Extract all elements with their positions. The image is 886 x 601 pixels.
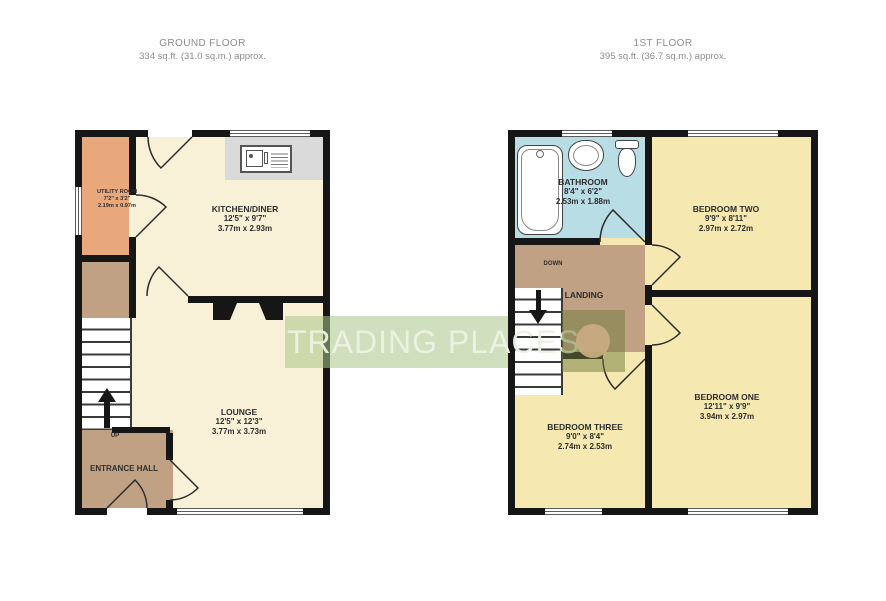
door-opening — [107, 508, 147, 515]
down-label: DOWN — [536, 261, 570, 268]
wall — [645, 345, 652, 508]
entrance-hall-label: ENTRANCE HALL — [84, 464, 164, 474]
room-name: KITCHEN/DINER — [185, 204, 305, 214]
watermark-logo — [562, 310, 625, 372]
room-size-imperial: 12'5" x 12'3" — [179, 417, 299, 427]
window — [177, 508, 303, 515]
utility-room-label: UTILITY ROOM 7'2" x 3'2" 2.19m x 0.97m — [87, 189, 147, 209]
bedroom-two-label: BEDROOM TWO 9'9" x 8'11" 2.97m x 2.72m — [666, 204, 786, 234]
sink-icon — [240, 145, 292, 173]
room-name: BEDROOM ONE — [667, 392, 787, 402]
room-size-metric: 2.97m x 2.72m — [666, 224, 786, 234]
room-size-imperial: 12'5" x 9'7" — [185, 214, 305, 224]
room-size-metric: 2.74m x 2.53m — [525, 442, 645, 452]
bath-tap-icon — [536, 150, 544, 158]
room-size-imperial: 9'9" x 8'11" — [666, 214, 786, 224]
sink-basin-icon — [246, 150, 263, 167]
basin-inner — [573, 145, 599, 166]
bathroom-label: BATHROOM 8'4" x 6'2" 2.53m x 1.88m — [531, 177, 635, 207]
floor-area: 334 sq.ft. (31.0 sq.m.) approx. — [75, 51, 330, 62]
wall — [82, 255, 136, 262]
floor-area: 395 sq.ft. (36.7 sq.m.) approx. — [508, 51, 818, 62]
room-size-metric: 3.94m x 2.97m — [667, 412, 787, 422]
sink-tap-icon — [249, 154, 253, 158]
ground-floor-header: GROUND FLOOR 334 sq.ft. (31.0 sq.m.) app… — [75, 38, 330, 62]
room-size-imperial: 8'4" x 6'2" — [531, 187, 635, 197]
room-size-metric: 2.19m x 0.97m — [87, 203, 147, 210]
door-opening — [148, 130, 192, 137]
watermark-text: TRADING PLACES — [287, 316, 567, 368]
wall — [645, 137, 652, 245]
window — [230, 130, 310, 137]
toilet-icon — [618, 148, 636, 177]
landing-label: LANDING — [556, 290, 612, 300]
room-name: BATHROOM — [531, 177, 635, 187]
sink-tap-icon — [264, 152, 268, 164]
wall — [515, 238, 600, 245]
up-label: UP — [103, 433, 127, 440]
floorplan-page: GROUND FLOOR 334 sq.ft. (31.0 sq.m.) app… — [0, 0, 886, 601]
watermark-logo-circle — [576, 324, 610, 358]
floor-title: GROUND FLOOR — [75, 38, 330, 49]
window — [545, 508, 602, 515]
wall — [166, 500, 173, 508]
floor-title: 1ST FLOOR — [508, 38, 818, 49]
bedroom-three-label: BEDROOM THREE 9'0" x 8'4" 2.74m x 2.53m — [525, 422, 645, 452]
sink-drainer-icon — [271, 151, 288, 168]
room-name: BEDROOM TWO — [666, 204, 786, 214]
room-name: LOUNGE — [179, 407, 299, 417]
room-name: UTILITY ROOM — [87, 189, 147, 196]
room-name: BEDROOM THREE — [525, 422, 645, 432]
lounge-label: LOUNGE 12'5" x 12'3" 3.77m x 3.73m — [179, 407, 299, 437]
room-size-imperial: 9'0" x 8'4" — [525, 432, 645, 442]
bedroom-one-label: BEDROOM ONE 12'11" x 9'9" 3.94m x 2.97m — [667, 392, 787, 422]
wall — [652, 290, 811, 297]
room-size-imperial: 7'2" x 3'2" — [87, 196, 147, 203]
room-size-metric: 3.77m x 2.93m — [185, 224, 305, 234]
window — [688, 130, 778, 137]
basin-icon — [568, 140, 604, 171]
first-floor-header: 1ST FLOOR 395 sq.ft. (36.7 sq.m.) approx… — [508, 38, 818, 62]
wall — [129, 237, 136, 318]
wall — [166, 433, 173, 460]
wall — [188, 296, 323, 303]
window — [75, 187, 82, 235]
wall — [129, 137, 136, 195]
room-size-imperial: 12'11" x 9'9" — [667, 402, 787, 412]
room-size-metric: 3.77m x 3.73m — [179, 427, 299, 437]
window — [562, 130, 612, 137]
window — [688, 508, 788, 515]
kitchen-diner-label: KITCHEN/DINER 12'5" x 9'7" 3.77m x 2.93m — [185, 204, 305, 234]
room-size-metric: 2.53m x 1.88m — [531, 197, 635, 207]
wall — [645, 285, 652, 305]
